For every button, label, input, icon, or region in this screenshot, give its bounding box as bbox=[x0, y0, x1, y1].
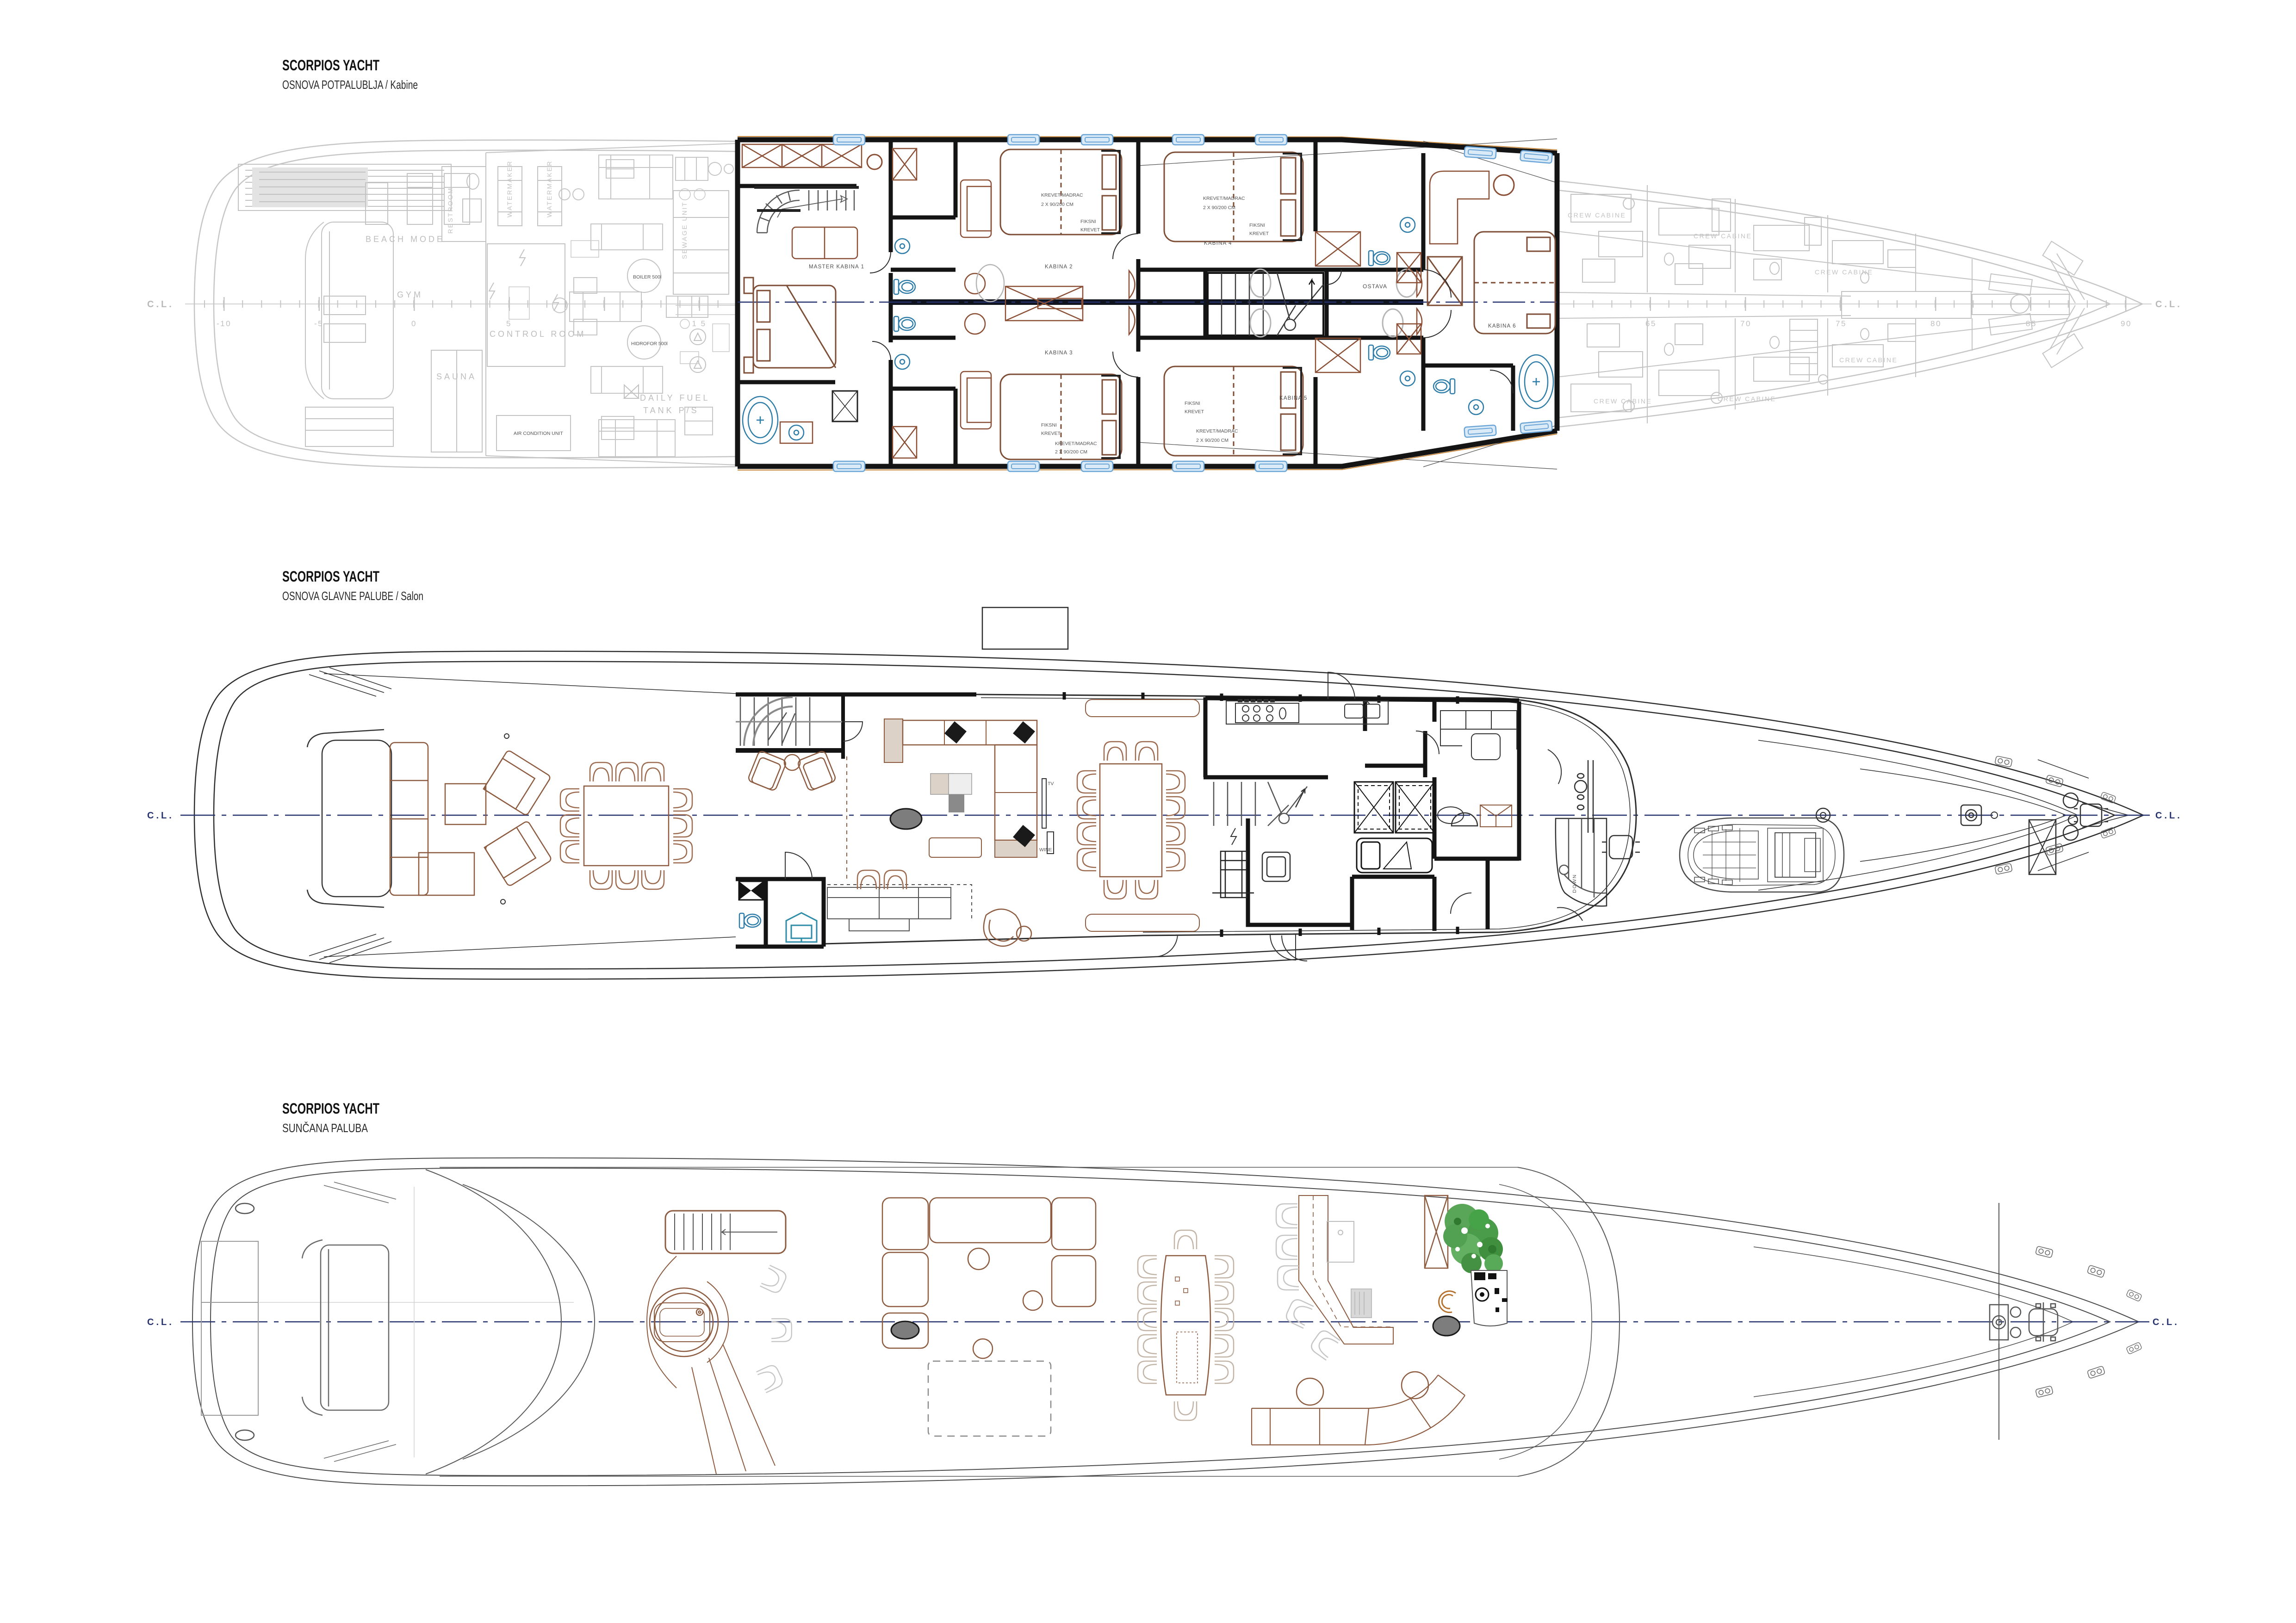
svg-text:C.L.: C.L. bbox=[2155, 299, 2182, 310]
svg-text:2 X 90/200 CM: 2 X 90/200 CM bbox=[1055, 449, 1087, 455]
svg-text:KREVET: KREVET bbox=[1249, 231, 1269, 236]
svg-text:2 X 90/200 CM: 2 X 90/200 CM bbox=[1203, 205, 1235, 211]
svg-text:CONTROL ROOM: CONTROL ROOM bbox=[490, 329, 586, 339]
svg-text:TANK P/S: TANK P/S bbox=[643, 406, 699, 415]
svg-text:CREW CABINE: CREW CABINE bbox=[1815, 268, 1873, 276]
svg-text:CREW CABINE: CREW CABINE bbox=[1568, 211, 1626, 219]
svg-text:KABINA 4: KABINA 4 bbox=[1204, 241, 1232, 246]
svg-text:C.L.: C.L. bbox=[2153, 1317, 2179, 1327]
svg-text:SCORPIOS YACHT: SCORPIOS YACHT bbox=[282, 57, 379, 74]
svg-text:KABINA 5: KABINA 5 bbox=[1279, 396, 1308, 401]
svg-text:KREVET/MADRAC: KREVET/MADRAC bbox=[1055, 441, 1097, 446]
svg-text:SCORPIOS YACHT: SCORPIOS YACHT bbox=[282, 568, 379, 585]
svg-text:FIKSNI: FIKSNI bbox=[1185, 401, 1200, 406]
svg-text:5: 5 bbox=[506, 319, 512, 328]
svg-text:DAILY FUEL: DAILY FUEL bbox=[640, 393, 710, 403]
svg-text:C.L.: C.L. bbox=[147, 299, 174, 310]
svg-text:0: 0 bbox=[411, 319, 417, 328]
svg-text:-10: -10 bbox=[217, 319, 231, 328]
svg-text:SAUNA: SAUNA bbox=[436, 372, 477, 381]
svg-text:RESTROOM: RESTROOM bbox=[447, 187, 454, 234]
svg-text:C.L.: C.L. bbox=[147, 1317, 174, 1327]
svg-text:2 X 90/200 CM: 2 X 90/200 CM bbox=[1196, 438, 1229, 443]
svg-text:HIDROFOR 500l: HIDROFOR 500l bbox=[631, 341, 668, 347]
svg-text:KREVET/MADRAC: KREVET/MADRAC bbox=[1196, 428, 1238, 434]
svg-text:2 X 90/200 CM: 2 X 90/200 CM bbox=[1041, 202, 1074, 207]
svg-text:KABINA 2: KABINA 2 bbox=[1045, 264, 1073, 270]
svg-text:MASTER KABINA 1: MASTER KABINA 1 bbox=[809, 264, 864, 270]
svg-text:80: 80 bbox=[1930, 319, 1942, 328]
svg-text:KREVET/MADRAC: KREVET/MADRAC bbox=[1203, 196, 1245, 201]
svg-text:WINE: WINE bbox=[1039, 847, 1052, 853]
svg-text:BOILER 500l: BOILER 500l bbox=[633, 274, 661, 280]
svg-text:-5: -5 bbox=[314, 319, 323, 328]
svg-text:FIKSNI: FIKSNI bbox=[1249, 223, 1265, 228]
svg-text:DOWN: DOWN bbox=[1572, 874, 1577, 893]
svg-text:90: 90 bbox=[2121, 319, 2132, 328]
svg-text:C.L.: C.L. bbox=[2155, 811, 2182, 821]
svg-text:OSNOVA POTPALUBLJA / Kabine: OSNOVA POTPALUBLJA / Kabine bbox=[282, 78, 418, 92]
svg-text:CREW CABINE: CREW CABINE bbox=[1839, 356, 1898, 364]
svg-text:KREVET/MADRAC: KREVET/MADRAC bbox=[1041, 192, 1083, 198]
svg-text:OSTAVA: OSTAVA bbox=[1363, 283, 1387, 290]
svg-text:C.L.: C.L. bbox=[147, 811, 174, 821]
svg-text:CREW CABINE: CREW CABINE bbox=[1694, 232, 1752, 240]
svg-text:KREVET: KREVET bbox=[1185, 409, 1204, 415]
svg-text:KREVET: KREVET bbox=[1041, 431, 1061, 436]
svg-text:WATERMAKER: WATERMAKER bbox=[506, 160, 513, 217]
svg-text:SUNČANA PALUBA: SUNČANA PALUBA bbox=[282, 1121, 368, 1135]
svg-text:FIKSNI: FIKSNI bbox=[1080, 219, 1096, 224]
svg-text:KABINA 3: KABINA 3 bbox=[1045, 350, 1073, 356]
svg-text:KABINA 6: KABINA 6 bbox=[1488, 323, 1516, 329]
svg-text:OSNOVA GLAVNE PALUBE / Salon: OSNOVA GLAVNE PALUBE / Salon bbox=[282, 589, 423, 603]
svg-text:GYM: GYM bbox=[397, 290, 423, 299]
svg-text:SCORPIOS YACHT: SCORPIOS YACHT bbox=[282, 1100, 379, 1117]
svg-text:TV: TV bbox=[1048, 781, 1054, 787]
svg-text:70: 70 bbox=[1740, 319, 1751, 328]
svg-text:SEWAGE UNIT: SEWAGE UNIT bbox=[681, 201, 688, 259]
svg-text:WATERMAKER: WATERMAKER bbox=[546, 160, 553, 217]
svg-text:AIR CONDITION UNIT: AIR CONDITION UNIT bbox=[514, 431, 563, 436]
svg-text:CREW CABINE: CREW CABINE bbox=[1594, 397, 1652, 405]
svg-text:1 5: 1 5 bbox=[692, 319, 706, 328]
svg-text:KREVET: KREVET bbox=[1080, 227, 1100, 233]
svg-text:75: 75 bbox=[1836, 319, 1847, 328]
svg-text:BEACH MODE: BEACH MODE bbox=[366, 235, 445, 244]
svg-text:CREW CABINE: CREW CABINE bbox=[1718, 395, 1776, 403]
svg-text:FIKSNI: FIKSNI bbox=[1041, 422, 1057, 428]
